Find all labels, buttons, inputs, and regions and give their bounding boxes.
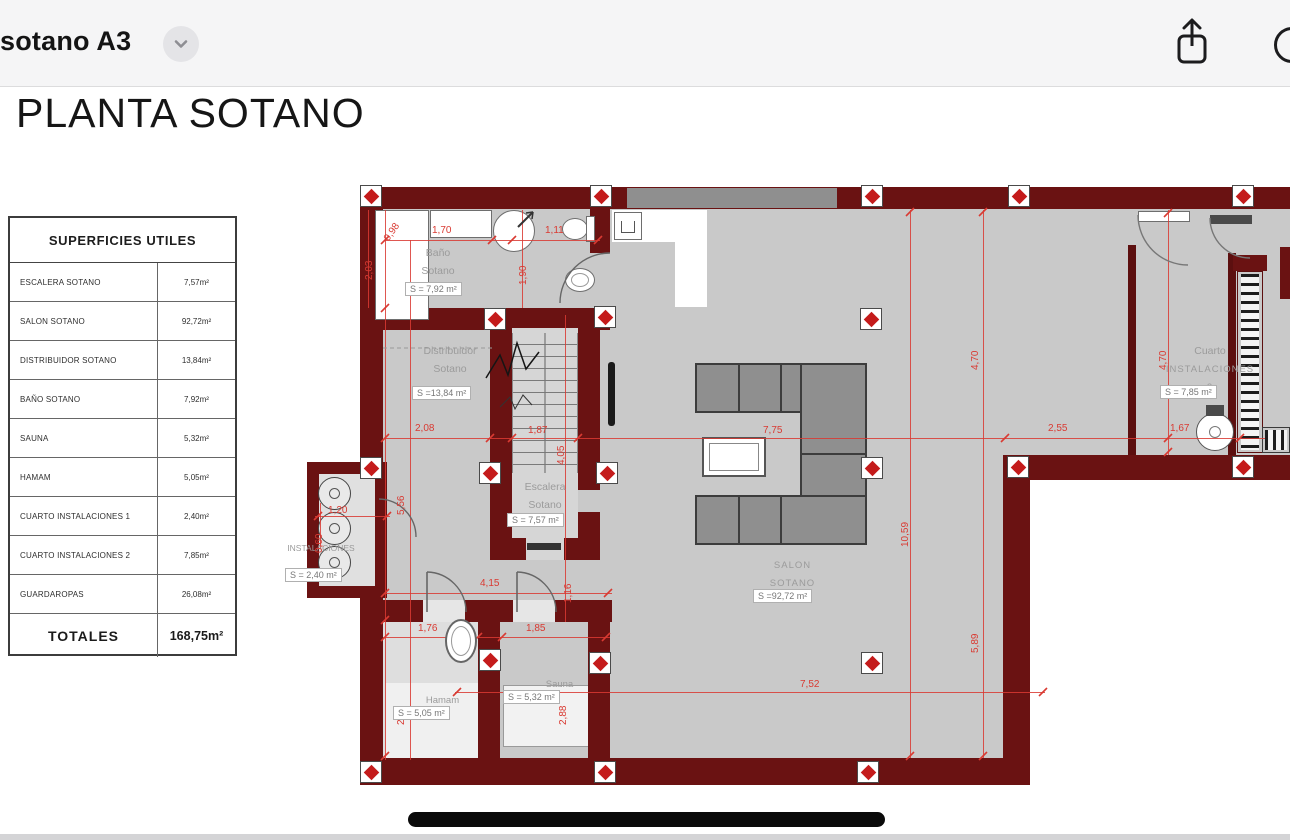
wall-marker [1232, 456, 1254, 478]
wall-marker [596, 462, 618, 484]
dim-label: 1,20 [328, 505, 347, 516]
table-row: HAMAM5,05m² [10, 458, 235, 497]
sofa-seam [780, 497, 782, 543]
table-row: SAUNA5,32m² [10, 419, 235, 458]
wall-marker [590, 185, 612, 207]
vent-icon [1262, 427, 1290, 453]
wall-marker [594, 306, 616, 328]
boiler-inner [1209, 426, 1221, 438]
dim-line [910, 210, 911, 758]
coffee-table-inner [709, 443, 759, 471]
share-icon [1170, 16, 1214, 70]
machine-detail [329, 488, 340, 499]
wall-sauna-right [588, 622, 610, 758]
table-row: CUARTO INSTALACIONES 27,85m² [10, 536, 235, 575]
wall-right-stub [1280, 247, 1290, 299]
dim-label: 2,55 [1048, 423, 1067, 434]
wall-bottom [360, 758, 1030, 785]
dim-label: 4,70 [970, 351, 981, 370]
sauna-door-gap [513, 600, 555, 622]
bidet-inner [571, 273, 589, 287]
share-button[interactable] [1166, 12, 1218, 74]
table-row: SALON SOTANO92,72m² [10, 302, 235, 341]
machine-detail [329, 557, 340, 568]
area-box-banyo: S = 7,92 m² [405, 282, 462, 296]
area-box-cuarto-instalaciones: S = 7,85 m² [1160, 385, 1217, 399]
dim-line [385, 210, 386, 760]
page-title: PLANTA SOTANO [16, 90, 365, 137]
areas-table: SUPERFICIES UTILES ESCALERA SOTANO7,57m²… [8, 216, 237, 656]
dim-label: 2,03 [364, 261, 375, 280]
dim-line [983, 210, 984, 758]
wall-marker [479, 649, 501, 671]
sofa-seam [738, 497, 740, 543]
area-box-distribuidor: S =13,84 m² [412, 386, 471, 400]
scale-bar [408, 812, 885, 827]
dim-label: 1,11 [545, 225, 564, 236]
machine-detail [329, 523, 340, 534]
area-box-escalera: S = 7,57 m² [507, 513, 564, 527]
dim-line [368, 210, 369, 308]
ladder-cap [1233, 255, 1267, 271]
dim-line [315, 516, 390, 517]
wall-marker [1232, 185, 1254, 207]
wall-marker [479, 462, 501, 484]
wall-hamam-sauna-divider [478, 622, 500, 758]
chimney-column [675, 210, 707, 307]
dim-line [522, 210, 523, 308]
dim-label: 10,59 [900, 522, 911, 547]
wall-marker [857, 761, 879, 783]
wall-marker [1008, 185, 1030, 207]
stair-treads [512, 333, 578, 473]
table-row: BAÑO SOTANO7,92m² [10, 380, 235, 419]
room-label-escalera: Escalera Sotano [505, 479, 585, 515]
dim-line [383, 637, 610, 638]
toilet-icon [562, 218, 588, 240]
wall-marker [860, 308, 882, 330]
wing-door-leaf [1138, 211, 1190, 222]
wall-marker [861, 652, 883, 674]
dim-label: 5,89 [970, 634, 981, 653]
dim-label: 1,76 [418, 623, 437, 634]
wall-marker [861, 185, 883, 207]
dim-label: 4,05 [556, 446, 567, 465]
dim-line [385, 240, 600, 241]
dim-line [1168, 210, 1169, 455]
stair-door-leaf [527, 543, 561, 550]
outside-area [1030, 480, 1290, 785]
dim-label: 7,52 [800, 679, 819, 690]
title-dropdown-button[interactable] [163, 26, 199, 62]
wall-marker [360, 185, 382, 207]
area-box-salon: S =92,72 m² [753, 589, 812, 603]
dim-label: 2,08 [415, 423, 434, 434]
top-window-band [627, 188, 837, 208]
dim-label: 1,85 [526, 623, 545, 634]
table-total-row: TOTALES 168,75m² [10, 614, 235, 657]
search-icon[interactable] [1274, 27, 1290, 63]
wall-hamam-top [383, 600, 612, 622]
title-bar: sotano A3 [0, 0, 1290, 87]
chevron-down-icon [173, 36, 189, 52]
dim-label: 1,16 [563, 584, 574, 603]
dim-line [385, 438, 1265, 439]
bottom-strip [0, 834, 1290, 840]
boiler-pipe [1206, 405, 1224, 416]
wall-marker [360, 761, 382, 783]
dim-label: 1,90 [518, 266, 529, 285]
wall-marker [594, 761, 616, 783]
appliance-detail [621, 221, 635, 233]
area-box-hamam: S = 5,05 m² [393, 706, 450, 720]
floor-plan: 0,98 2,03 1,70 1,11 1,90 4,70 4,70 2,08 … [360, 185, 1290, 785]
sofa-seam [780, 365, 782, 411]
sofa-seam [802, 453, 865, 455]
table-row: ESCALERA SOTANO7,57m² [10, 263, 235, 302]
toilet-tank [586, 216, 595, 242]
dim-line [385, 593, 612, 594]
tv-icon [608, 362, 615, 426]
area-box-instalaciones: S = 2,40 m² [285, 568, 342, 582]
wing-slide-leaf [1210, 215, 1252, 224]
table-row: DISTRIBUIDOR SOTANO13,84m² [10, 341, 235, 380]
dim-label: 1,67 [1170, 423, 1189, 434]
room-label-distribuidor: Distribuidor Sotano [405, 343, 495, 379]
screen: sotano A3 PLANTA SOTANO SUPERFICIES UTIL… [0, 0, 1290, 840]
areas-table-header: SUPERFICIES UTILES [10, 218, 235, 263]
wall-marker [1007, 456, 1029, 478]
room-label-salon: SALON SOTANO [755, 557, 830, 593]
table-row: CUARTO INSTALACIONES 12,40m² [10, 497, 235, 536]
dim-label: 5,56 [396, 496, 407, 515]
wall-marker [861, 457, 883, 479]
hamam-basin-inner [451, 626, 471, 656]
wall-stair-right-stub [578, 512, 600, 538]
wall-marker [484, 308, 506, 330]
document-title: sotano A3 [0, 26, 131, 57]
wall-wing-divider [1128, 245, 1136, 455]
dim-label: 0,60 [314, 534, 325, 553]
room-label-banyo: Baño Sotano [408, 245, 468, 281]
dim-label: 1,87 [528, 425, 547, 436]
dim-label: 4,15 [480, 578, 499, 589]
dim-label: 2,88 [558, 706, 569, 725]
area-box-sauna: S = 5,32 m² [503, 690, 560, 704]
table-row: GUARDAROPAS26,08m² [10, 575, 235, 614]
dim-label: 4,70 [1158, 351, 1169, 370]
dim-label: 7,75 [763, 425, 782, 436]
sink-icon [493, 210, 535, 252]
sofa-seam [738, 365, 740, 411]
wall-salon-right [1003, 462, 1030, 785]
wall-marker [589, 652, 611, 674]
dim-line [565, 315, 566, 622]
dim-line [410, 240, 411, 760]
dim-label: 1,70 [432, 225, 451, 236]
wall-marker [360, 457, 382, 479]
